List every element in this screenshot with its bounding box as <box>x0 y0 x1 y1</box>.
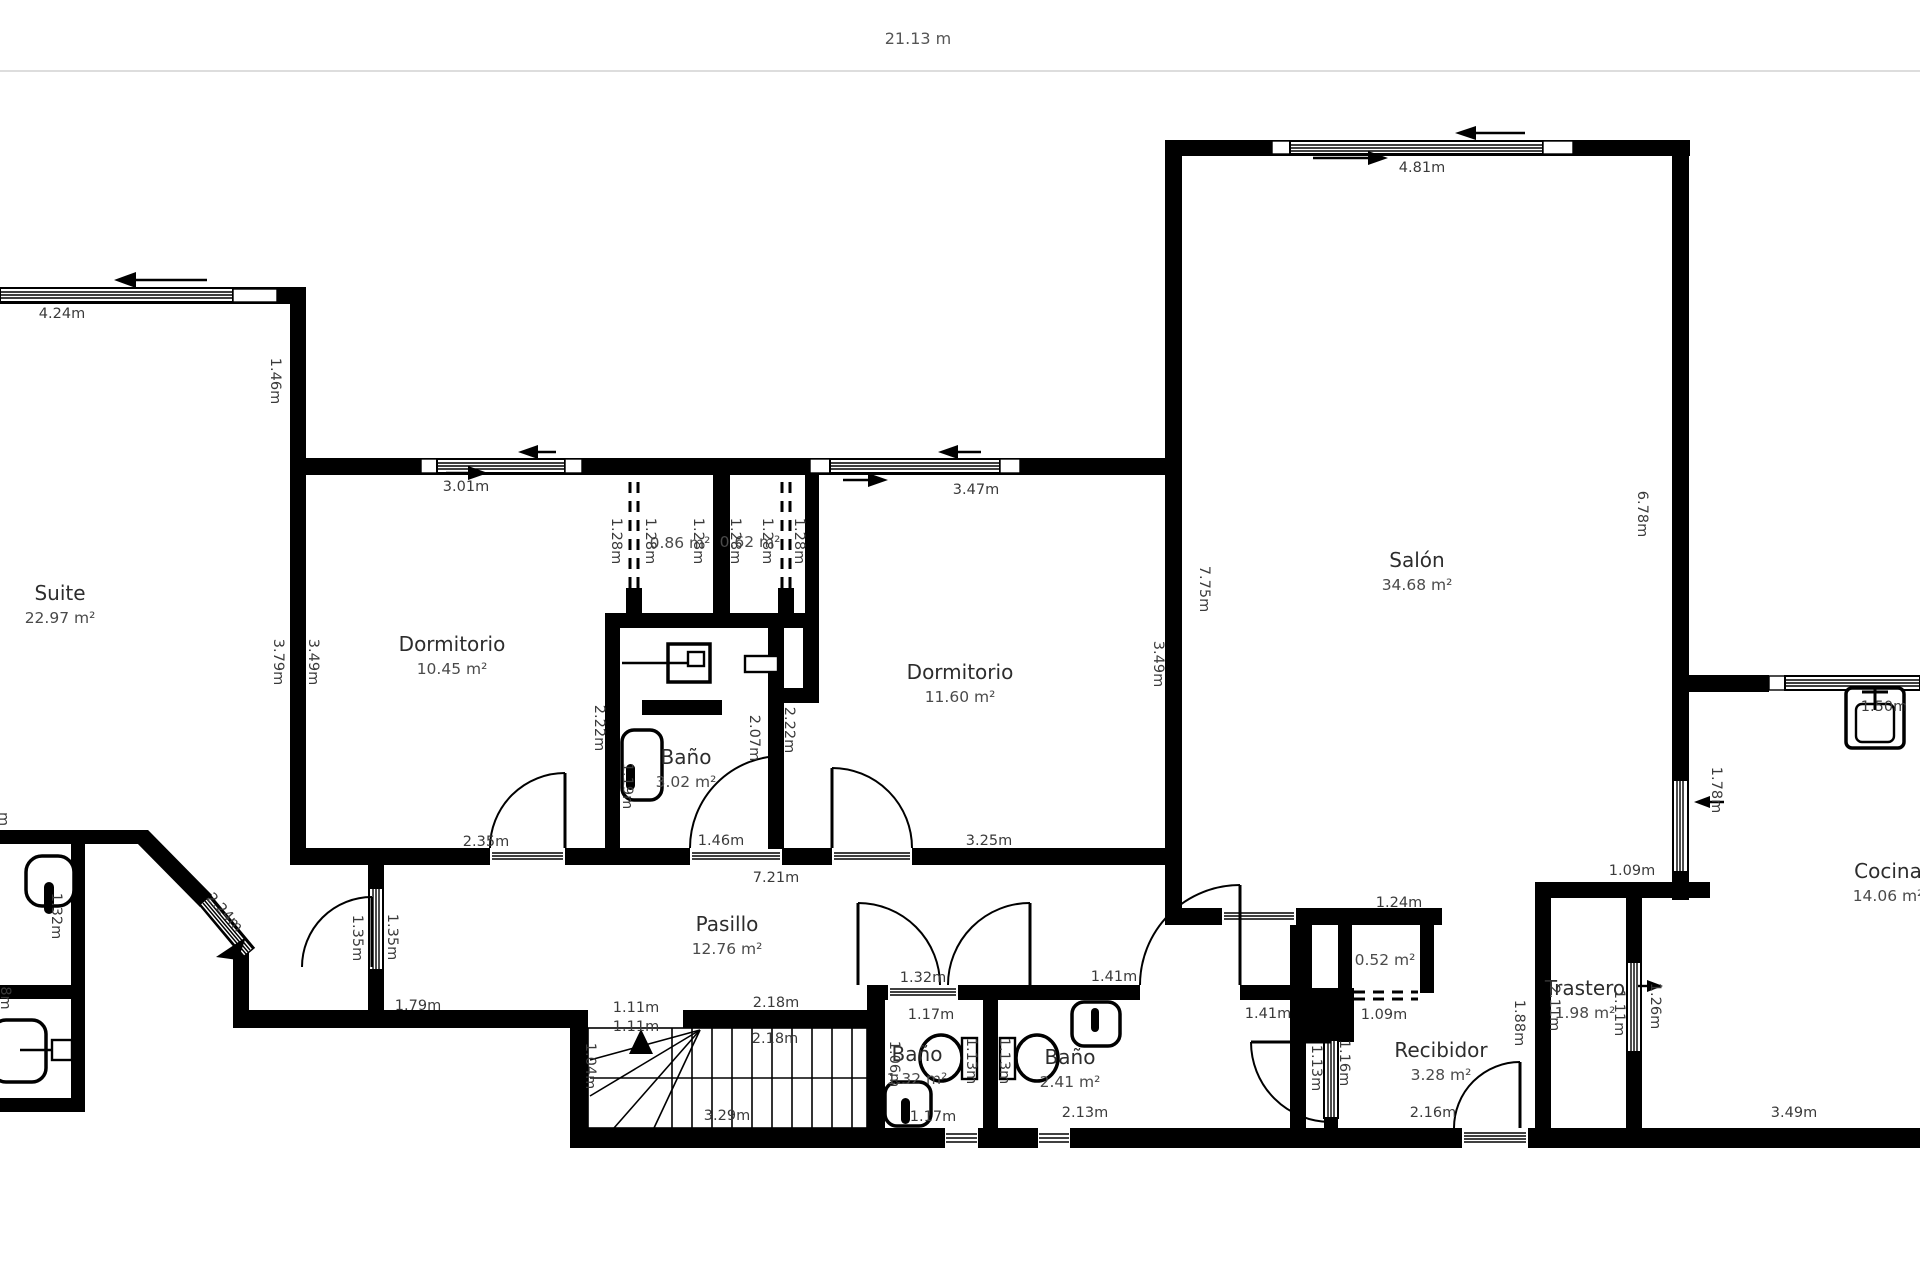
dimension-label: 3.49m <box>1771 1105 1817 1121</box>
room-area: 34.68 m² <box>1382 576 1453 594</box>
dimension-label: 1.28m <box>791 518 807 564</box>
dimension-label: 4.81m <box>1399 160 1445 176</box>
room-area: 3.02 m² <box>656 773 717 791</box>
entry-door-threshold <box>1462 1130 1528 1146</box>
room-area: 1.98 m² <box>1555 1004 1616 1022</box>
radiator-icon <box>901 1098 910 1124</box>
room-area: 0.52 m² <box>1355 951 1416 969</box>
dimension-label: 1.41m <box>1245 1006 1291 1022</box>
dimension-label: 1.41m <box>1091 969 1137 985</box>
dimension-label: 1.50m <box>1861 699 1907 715</box>
window <box>0 288 277 302</box>
room-name: Pasillo <box>696 912 759 936</box>
room-area: 11.60 m² <box>925 688 996 706</box>
dimension-label: 1.16m <box>1336 1040 1352 1086</box>
dimension-label: 1.11m <box>613 1019 659 1035</box>
room-area: 10.45 m² <box>417 660 488 678</box>
dimension-label: 1.13m <box>963 1038 979 1084</box>
room-name: Dormitorio <box>399 632 506 656</box>
door-threshold <box>1038 1130 1070 1146</box>
room-area: 14.06 m² <box>1853 887 1920 905</box>
dimension-label: 1.24m <box>1376 895 1422 911</box>
dimension-label: 1.28m <box>608 518 624 564</box>
floorplan-canvas: 21.13 m <box>0 0 1920 1280</box>
window-arrow <box>518 445 556 459</box>
dimension-label: 2.11m <box>1546 985 1562 1031</box>
dimension-label: 1.32m <box>900 970 946 986</box>
dimension-label: 3.29m <box>704 1108 750 1124</box>
floorplan-page: 21.13 m <box>0 0 1920 1280</box>
dimension-label: 2.16m <box>1410 1105 1456 1121</box>
dimension-label: 1.78m <box>1708 767 1724 813</box>
dimension-label: 1.88m <box>1511 1000 1527 1046</box>
dimension-label: 1.09m <box>1361 1007 1407 1023</box>
niche-icon <box>745 656 778 672</box>
bidet-icon <box>0 1020 72 1082</box>
dimension-label: 1.46m <box>698 833 744 849</box>
room-area: 12.76 m² <box>692 940 763 958</box>
dimension-label: 2.18m <box>753 995 799 1011</box>
total-width-label: 21.13 m <box>885 29 951 48</box>
dimension-label: 2.22m <box>591 705 607 751</box>
dimension-label: 2.13m <box>1062 1105 1108 1121</box>
dimension-label: 1.28m <box>690 518 706 564</box>
dimension-label: 1.35m <box>349 915 365 961</box>
dimension-label: 1.28m <box>727 518 743 564</box>
door <box>1140 885 1240 985</box>
room-name: Baño <box>1045 1045 1096 1069</box>
door-threshold <box>490 849 565 864</box>
dimension-label: 4.24m <box>39 306 85 322</box>
dimension-label: 2.07m <box>746 715 762 761</box>
room-name: Dormitorio <box>907 660 1014 684</box>
sink-icon <box>1846 688 1904 748</box>
dimension-label: 2.18m <box>752 1031 798 1047</box>
dimension-label: 1.26m <box>1647 983 1663 1029</box>
window <box>1272 141 1573 154</box>
door-threshold <box>945 1130 978 1146</box>
window-arrow <box>938 445 981 459</box>
dimension-label: 3.01m <box>443 479 489 495</box>
dimension-label: 3.47m <box>953 482 999 498</box>
dimension-label: 7.75m <box>1196 566 1212 612</box>
dimension-label: 1.17m <box>908 1007 954 1023</box>
window-arrow <box>843 473 888 487</box>
glazed-door <box>1324 1040 1338 1118</box>
room-name: Recibidor <box>1394 1038 1488 1062</box>
dimension-label: 1.19m <box>619 763 635 809</box>
radiator-icon <box>1091 1008 1099 1032</box>
dimension-label: 2.35m <box>463 834 509 850</box>
door-threshold <box>690 849 782 864</box>
door-threshold <box>888 986 958 999</box>
dimension-label: 6.78m <box>1634 491 1650 537</box>
dimension-label: 1.13m <box>1308 1045 1324 1091</box>
room-area: 22.97 m² <box>25 609 96 627</box>
dimension-label: 3.49m <box>1150 641 1166 687</box>
dimension-label: 8m <box>0 986 13 1009</box>
room-name: Suite <box>34 581 85 605</box>
door <box>832 768 912 848</box>
dimension-label: 1.06m <box>886 1041 902 1087</box>
dimension-label: 1.79m <box>395 998 441 1014</box>
dimension-label: 1.28m <box>759 518 775 564</box>
door <box>948 903 1030 985</box>
dimension-label: 3.25m <box>966 833 1012 849</box>
dimension-label: 1.13m <box>996 1038 1012 1084</box>
room-area: 3.28 m² <box>1411 1066 1472 1084</box>
window <box>421 459 582 473</box>
dimension-label: 3.79m <box>270 639 286 685</box>
dimension-label: 1.09m <box>1609 863 1655 879</box>
window-arrow <box>1455 126 1525 140</box>
window-arrow <box>114 272 207 288</box>
dimension-label: 1.17m <box>910 1109 956 1125</box>
room-name: Cocina <box>1854 859 1920 883</box>
room-name: Salón <box>1389 548 1444 572</box>
dimension-label: 1.04m <box>582 1043 598 1089</box>
dimension-label: 1.32m <box>48 893 64 939</box>
shower-icon <box>622 644 710 682</box>
dimension-label: 1.28m <box>642 518 658 564</box>
dimension-label: 2.22m <box>781 707 797 753</box>
room-area: 2.41 m² <box>1040 1073 1101 1091</box>
door-threshold <box>832 849 912 864</box>
dimension-label: m <box>0 812 11 826</box>
dimension-label: 3.49m <box>305 639 321 685</box>
dimension-label: 1.35m <box>384 914 400 960</box>
dimension-label: 1.11m <box>613 1000 659 1016</box>
dimension-label: 1.11m <box>1611 990 1627 1036</box>
glazed-panel <box>1627 962 1641 1052</box>
dimension-label: 1.46m <box>267 358 283 404</box>
dimension-label: 7.21m <box>753 870 799 886</box>
glazed-passage <box>1673 780 1688 872</box>
window <box>810 459 1020 473</box>
room-name: Baño <box>661 745 712 769</box>
door-threshold <box>1222 909 1296 924</box>
